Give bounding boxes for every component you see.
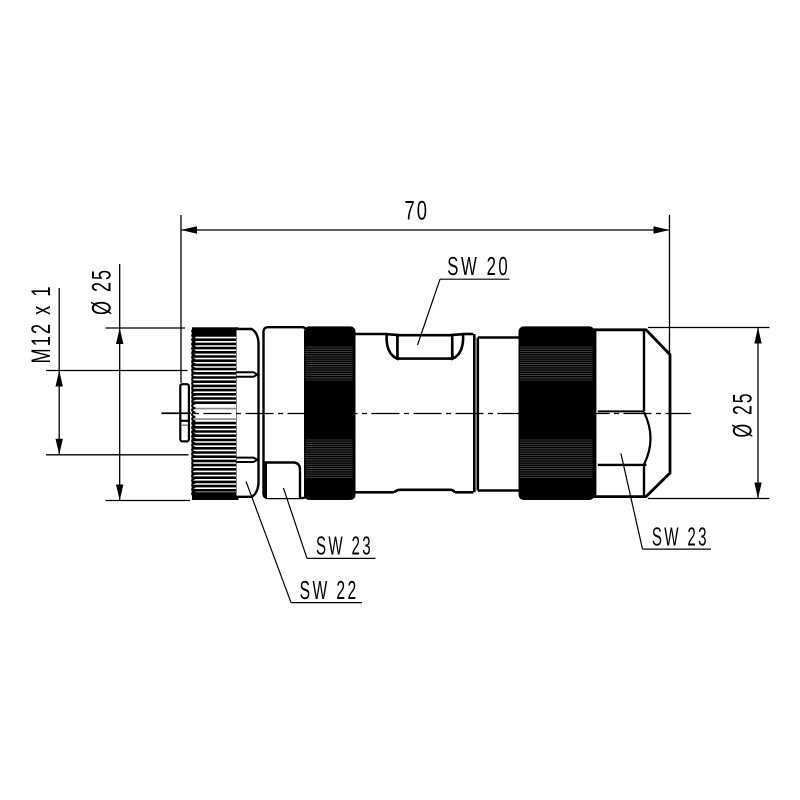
svg-text:SW 23: SW 23 [316,531,373,561]
svg-text:SW 20: SW 20 [447,251,510,281]
svg-text:SW 23: SW 23 [652,521,709,551]
svg-text:M12 x 1: M12 x 1 [26,285,56,364]
svg-text:SW 22: SW 22 [300,575,359,605]
svg-text:Ø 25: Ø 25 [87,268,117,315]
svg-text:70: 70 [405,196,430,226]
svg-text:Ø 25: Ø 25 [728,392,758,438]
